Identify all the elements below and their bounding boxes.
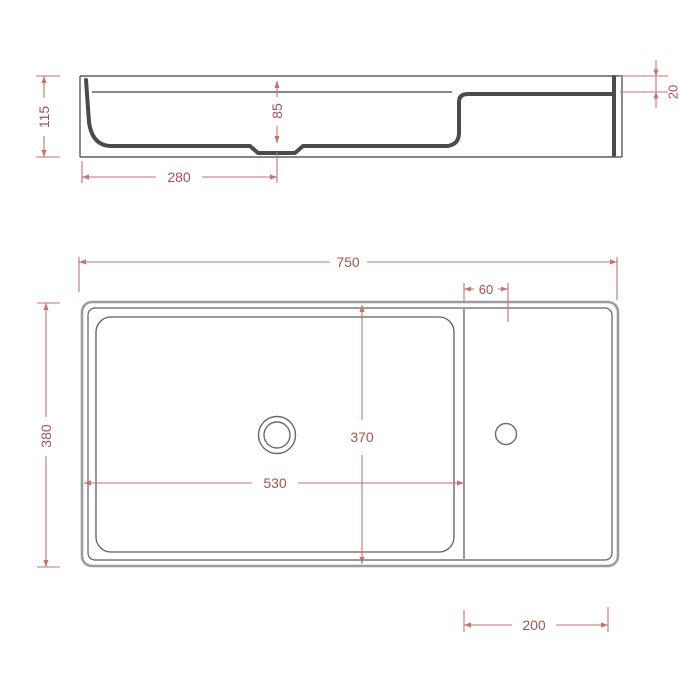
dim-380-label: 380 xyxy=(38,424,54,448)
dim-deck-width: 200 xyxy=(464,607,608,633)
dim-530-label: 530 xyxy=(263,475,287,491)
dim-115-arrow-bottom xyxy=(41,150,46,157)
dim-200-arrow-right xyxy=(601,622,608,627)
dim-280-label: 280 xyxy=(167,169,191,185)
dim-85-label: 85 xyxy=(269,103,285,119)
dim-60-arrow-right xyxy=(501,287,508,292)
tap-hole xyxy=(496,424,517,445)
drain-hole-inner xyxy=(264,422,290,448)
dim-85-arrow-top xyxy=(274,81,279,88)
plan-basin-rect xyxy=(96,317,454,552)
basin-section-profile xyxy=(86,80,611,153)
washbasin-technical-drawing: 115 85 280 20 xyxy=(0,0,700,700)
dim-overall-width: 750 xyxy=(79,254,617,300)
dim-inner-depth: 370 xyxy=(350,305,374,564)
dim-200-arrow-left xyxy=(464,622,471,627)
dim-750-label: 750 xyxy=(336,254,360,270)
dim-380-arrow-top xyxy=(43,303,48,310)
dim-20-arrow-top xyxy=(653,70,658,77)
dim-380-arrow-bottom xyxy=(43,560,48,567)
dim-370-label: 370 xyxy=(350,429,374,445)
dim-60-label: 60 xyxy=(479,282,493,297)
dim-overall-height: 115 xyxy=(36,76,60,157)
side-elevation-view xyxy=(80,75,622,157)
dim-115-arrow-top xyxy=(41,76,46,83)
dim-85-arrow-bottom xyxy=(274,136,279,143)
dim-115-label: 115 xyxy=(36,106,52,129)
dim-basin-width: 530 xyxy=(84,475,464,491)
dim-280-arrow-left xyxy=(82,174,89,179)
dim-60-arrow-left xyxy=(464,287,471,292)
dim-200-label: 200 xyxy=(522,617,546,633)
dim-750-arrow-right xyxy=(610,259,617,264)
technical-drawing-sheet: 115 85 280 20 xyxy=(0,0,700,700)
dim-basin-depth: 85 xyxy=(269,81,285,143)
dim-20-label: 20 xyxy=(666,85,681,99)
dim-530-arrow-right xyxy=(457,480,464,485)
dim-overall-depth: 380 xyxy=(37,303,60,567)
dim-750-arrow-left xyxy=(79,259,86,264)
dim-deck-recess: 20 xyxy=(620,60,681,108)
dim-280-arrow-right xyxy=(270,174,277,179)
dim-20-arrow-bottom xyxy=(653,92,658,99)
